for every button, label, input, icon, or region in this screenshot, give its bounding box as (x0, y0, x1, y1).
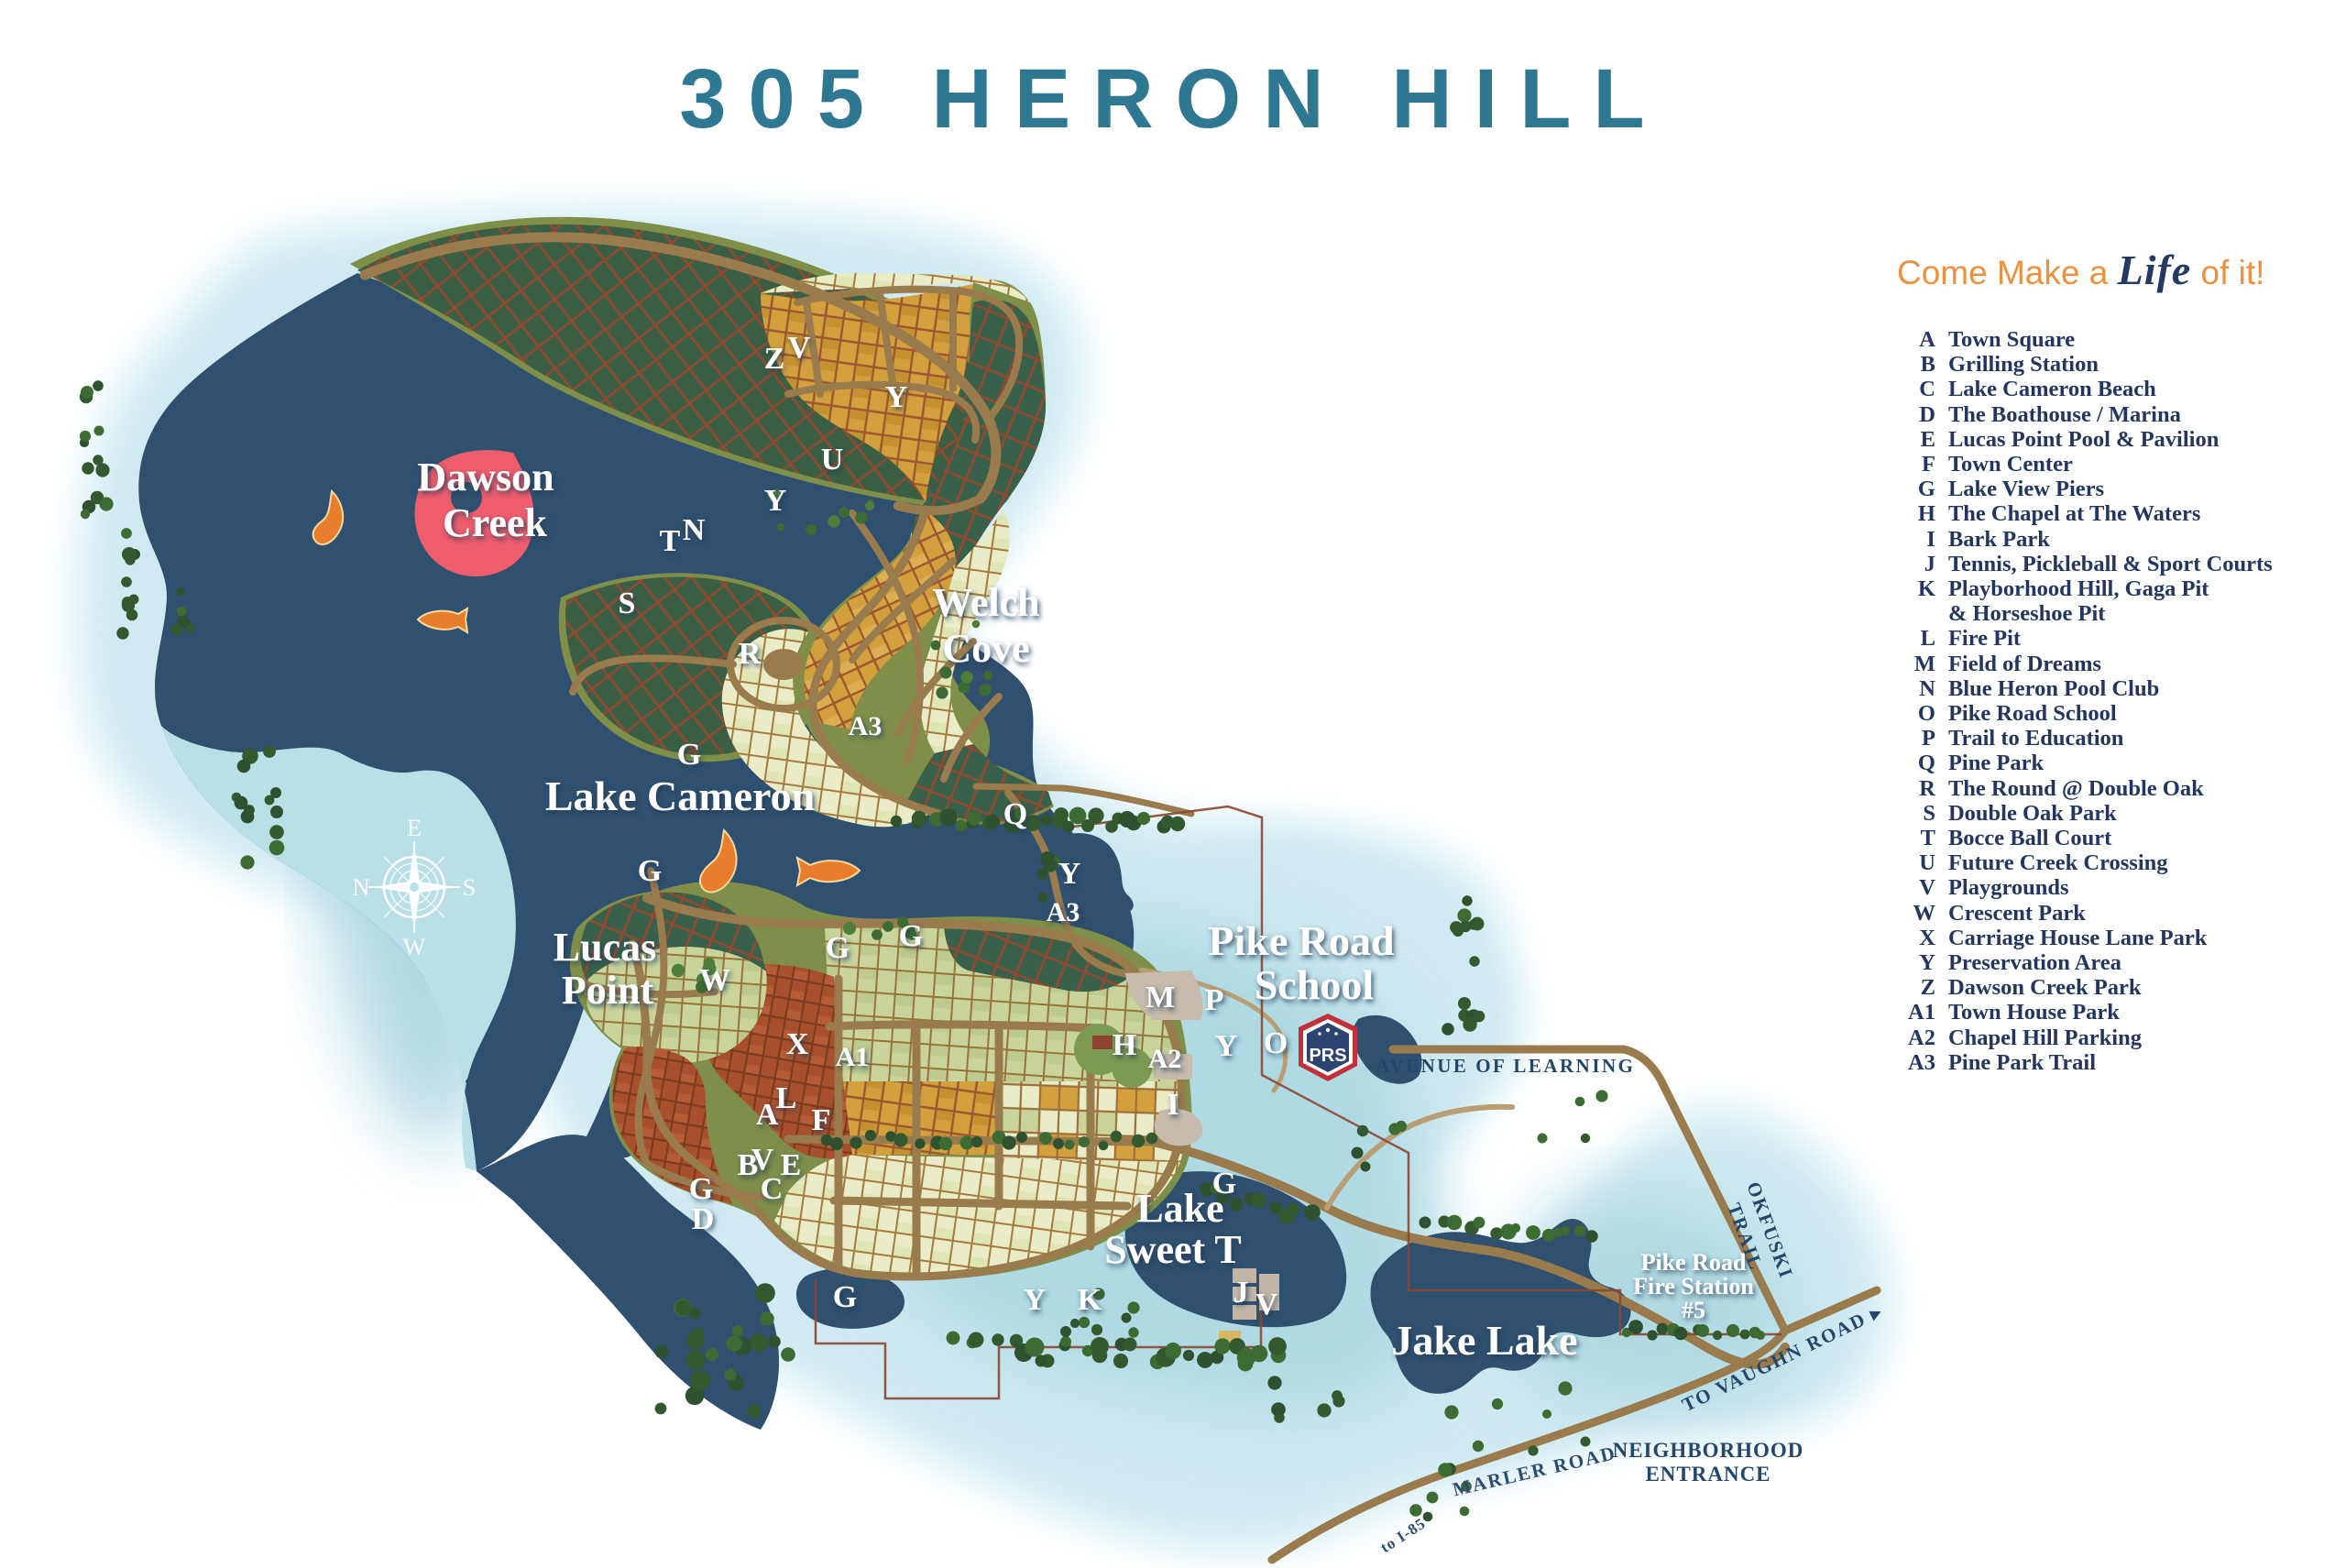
svg-text:D: D (692, 1202, 715, 1236)
svg-text:T: T (660, 524, 681, 558)
svg-text:G: G (689, 1172, 713, 1206)
svg-text:Fire Station: Fire Station (1633, 1273, 1754, 1299)
svg-text:Cove: Cove (942, 626, 1029, 671)
svg-text:Dawson: Dawson (417, 455, 554, 499)
svg-text:Welch: Welch (932, 580, 1039, 625)
svg-text:V: V (1255, 1288, 1278, 1321)
svg-text:E: E (781, 1148, 802, 1182)
svg-text:School: School (1255, 961, 1374, 1008)
svg-text:G: G (677, 738, 701, 772)
svg-text:G: G (899, 919, 923, 953)
svg-text:N: N (683, 513, 706, 547)
svg-text:AVENUE OF LEARNING: AVENUE OF LEARNING (1376, 1055, 1635, 1077)
svg-text:G: G (826, 931, 850, 965)
svg-text:Lake Cameron: Lake Cameron (545, 773, 815, 819)
svg-text:Point: Point (562, 968, 654, 1013)
svg-text:O: O (1264, 1026, 1288, 1060)
svg-text:K: K (1078, 1283, 1102, 1317)
svg-text:Z: Z (764, 342, 785, 376)
svg-text:E: E (407, 815, 422, 841)
svg-text:Y: Y (1215, 1029, 1238, 1063)
svg-text:Pike Road: Pike Road (1208, 917, 1395, 964)
svg-text:G: G (1212, 1167, 1236, 1201)
svg-text:Y: Y (1058, 857, 1081, 891)
svg-text:Y: Y (1024, 1283, 1047, 1317)
svg-text:Y: Y (764, 484, 787, 518)
svg-text:A1: A1 (836, 1042, 870, 1072)
svg-text:Lake: Lake (1136, 1186, 1223, 1231)
svg-text:G: G (833, 1280, 857, 1314)
svg-text:ENTRANCE: ENTRANCE (1645, 1463, 1770, 1486)
svg-text:C: C (761, 1172, 784, 1206)
svg-text:Lucas: Lucas (554, 925, 656, 970)
svg-text:PRS: PRS (1309, 1046, 1346, 1066)
svg-text:#5: #5 (1682, 1297, 1705, 1323)
svg-text:Jake Lake: Jake Lake (1391, 1317, 1577, 1364)
svg-text:I: I (1167, 1088, 1178, 1122)
svg-text:G: G (638, 854, 662, 888)
svg-text:L: L (776, 1081, 797, 1115)
svg-text:NEIGHBORHOOD: NEIGHBORHOOD (1613, 1439, 1804, 1462)
svg-text:M: M (1146, 981, 1175, 1014)
svg-text:Creek: Creek (443, 500, 548, 545)
svg-text:Pike Road: Pike Road (1641, 1249, 1747, 1276)
svg-text:A3: A3 (1047, 897, 1080, 927)
svg-text:P: P (1205, 983, 1224, 1017)
svg-text:F: F (812, 1103, 831, 1137)
svg-text:U: U (821, 443, 844, 477)
svg-text:H: H (1113, 1028, 1136, 1062)
svg-text:A3: A3 (849, 711, 882, 741)
svg-text:Y: Y (885, 380, 908, 414)
svg-text:S: S (619, 587, 636, 620)
svg-text:R: R (739, 637, 762, 671)
svg-text:N: N (353, 874, 370, 901)
svg-text:Q: Q (1003, 797, 1027, 831)
svg-text:W: W (699, 963, 730, 997)
svg-text:X: X (786, 1027, 809, 1061)
svg-text:A: A (756, 1098, 779, 1132)
svg-text:S: S (463, 874, 476, 901)
svg-text:Sweet T: Sweet T (1104, 1227, 1242, 1272)
svg-text:to I-85: to I-85 (1377, 1515, 1429, 1557)
svg-text:V: V (788, 331, 811, 365)
svg-text:W: W (403, 934, 426, 960)
svg-text:A2: A2 (1148, 1044, 1182, 1074)
svg-text:J: J (1233, 1276, 1249, 1310)
